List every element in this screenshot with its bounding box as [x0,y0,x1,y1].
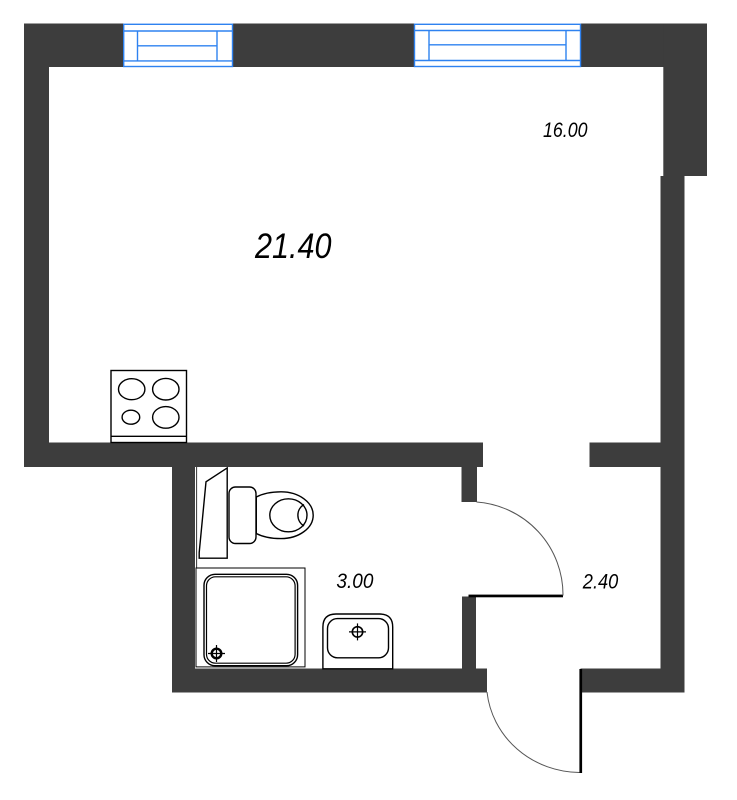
svg-text:21.40: 21.40 [254,227,332,266]
svg-text:2.40: 2.40 [582,570,619,593]
svg-text:16.00: 16.00 [543,119,588,142]
svg-text:3.00: 3.00 [336,570,373,593]
